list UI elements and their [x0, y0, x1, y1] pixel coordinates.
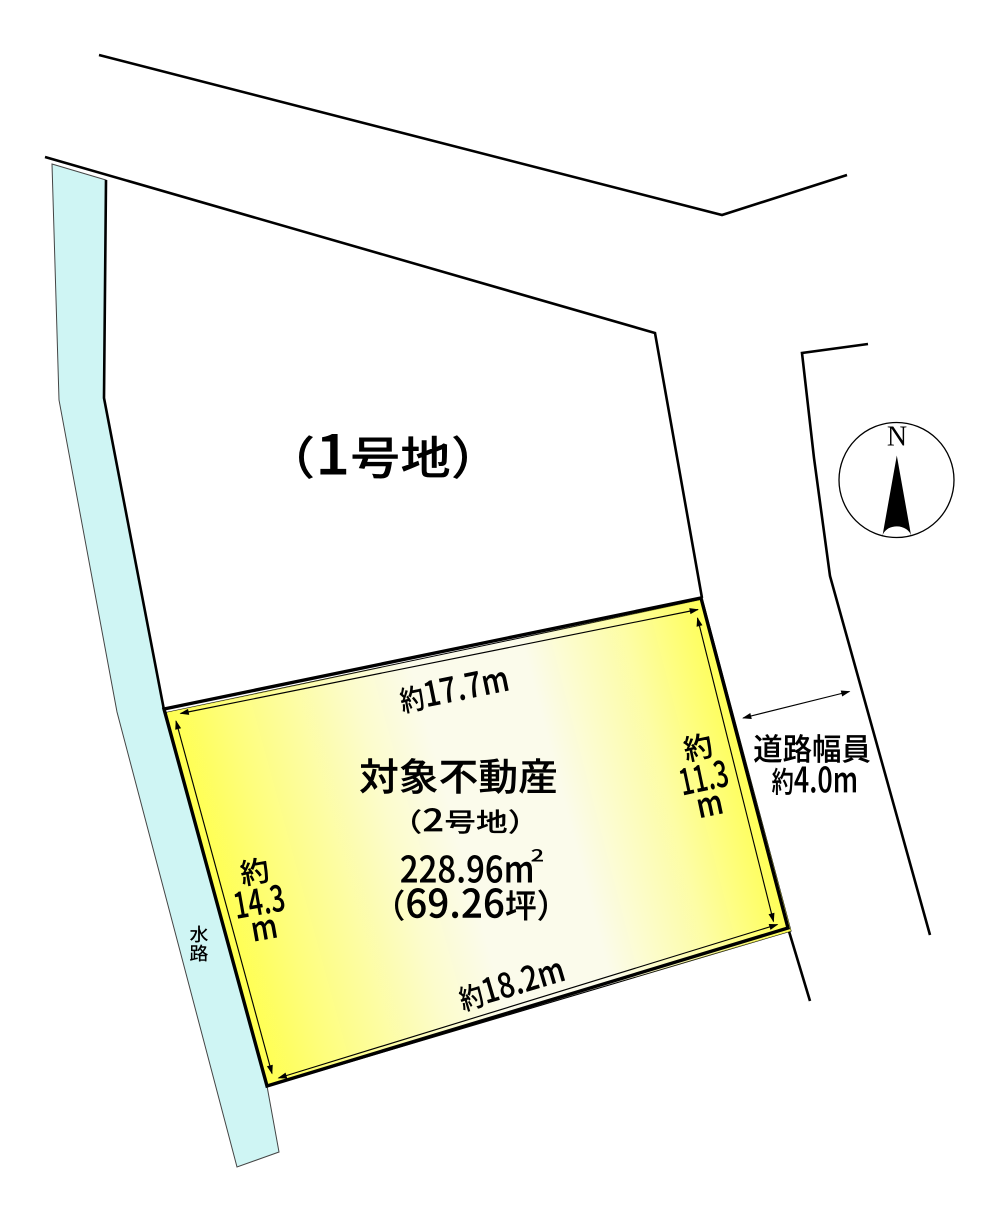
svg-text:N: N — [887, 422, 907, 453]
